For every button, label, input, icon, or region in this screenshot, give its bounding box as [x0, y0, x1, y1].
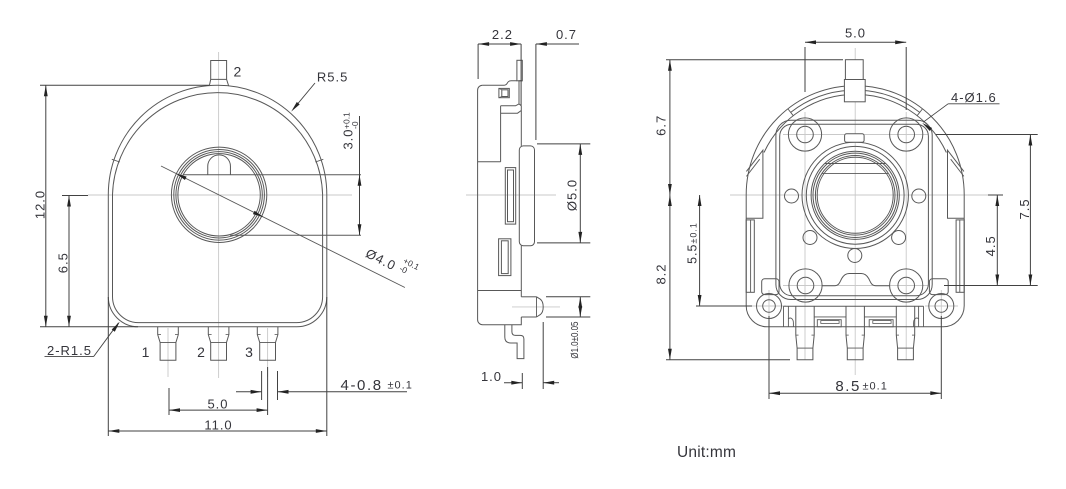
svg-text:7.5: 7.5: [1017, 198, 1032, 219]
svg-text:4-Ø1.6: 4-Ø1.6: [951, 90, 997, 105]
svg-text:1.0: 1.0: [481, 369, 502, 384]
svg-text:2: 2: [234, 64, 243, 80]
svg-text:2-R1.5: 2-R1.5: [47, 343, 92, 358]
svg-text:0.7: 0.7: [556, 27, 577, 42]
svg-text:±0.1: ±0.1: [863, 380, 888, 392]
svg-text:6.7: 6.7: [654, 115, 669, 136]
svg-text:5.0: 5.0: [845, 26, 866, 41]
svg-text:Unit:mm: Unit:mm: [677, 444, 736, 461]
svg-text:6.5: 6.5: [56, 252, 71, 273]
svg-text:-0: -0: [350, 121, 360, 129]
svg-text:4.5: 4.5: [983, 235, 998, 256]
svg-text:R5.5: R5.5: [317, 70, 348, 85]
svg-text:5.0: 5.0: [207, 396, 228, 411]
svg-text:5.5±0.1: 5.5±0.1: [685, 222, 699, 264]
svg-text:12.0: 12.0: [32, 190, 47, 219]
svg-text:Ø5.0: Ø5.0: [564, 179, 579, 211]
svg-text:8.5: 8.5: [835, 378, 861, 395]
svg-text:Ø1.0±0.05: Ø1.0±0.05: [569, 321, 581, 358]
svg-text:±0.1: ±0.1: [388, 380, 413, 392]
svg-text:8.2: 8.2: [654, 263, 669, 284]
svg-text:4-0.8: 4-0.8: [341, 377, 383, 394]
svg-text:11.0: 11.0: [204, 417, 232, 432]
svg-text:2: 2: [197, 344, 206, 360]
svg-text:3.0: 3.0: [340, 128, 355, 149]
svg-text:1: 1: [142, 344, 151, 360]
svg-text:2.2: 2.2: [492, 27, 513, 42]
svg-text:3: 3: [245, 344, 254, 360]
